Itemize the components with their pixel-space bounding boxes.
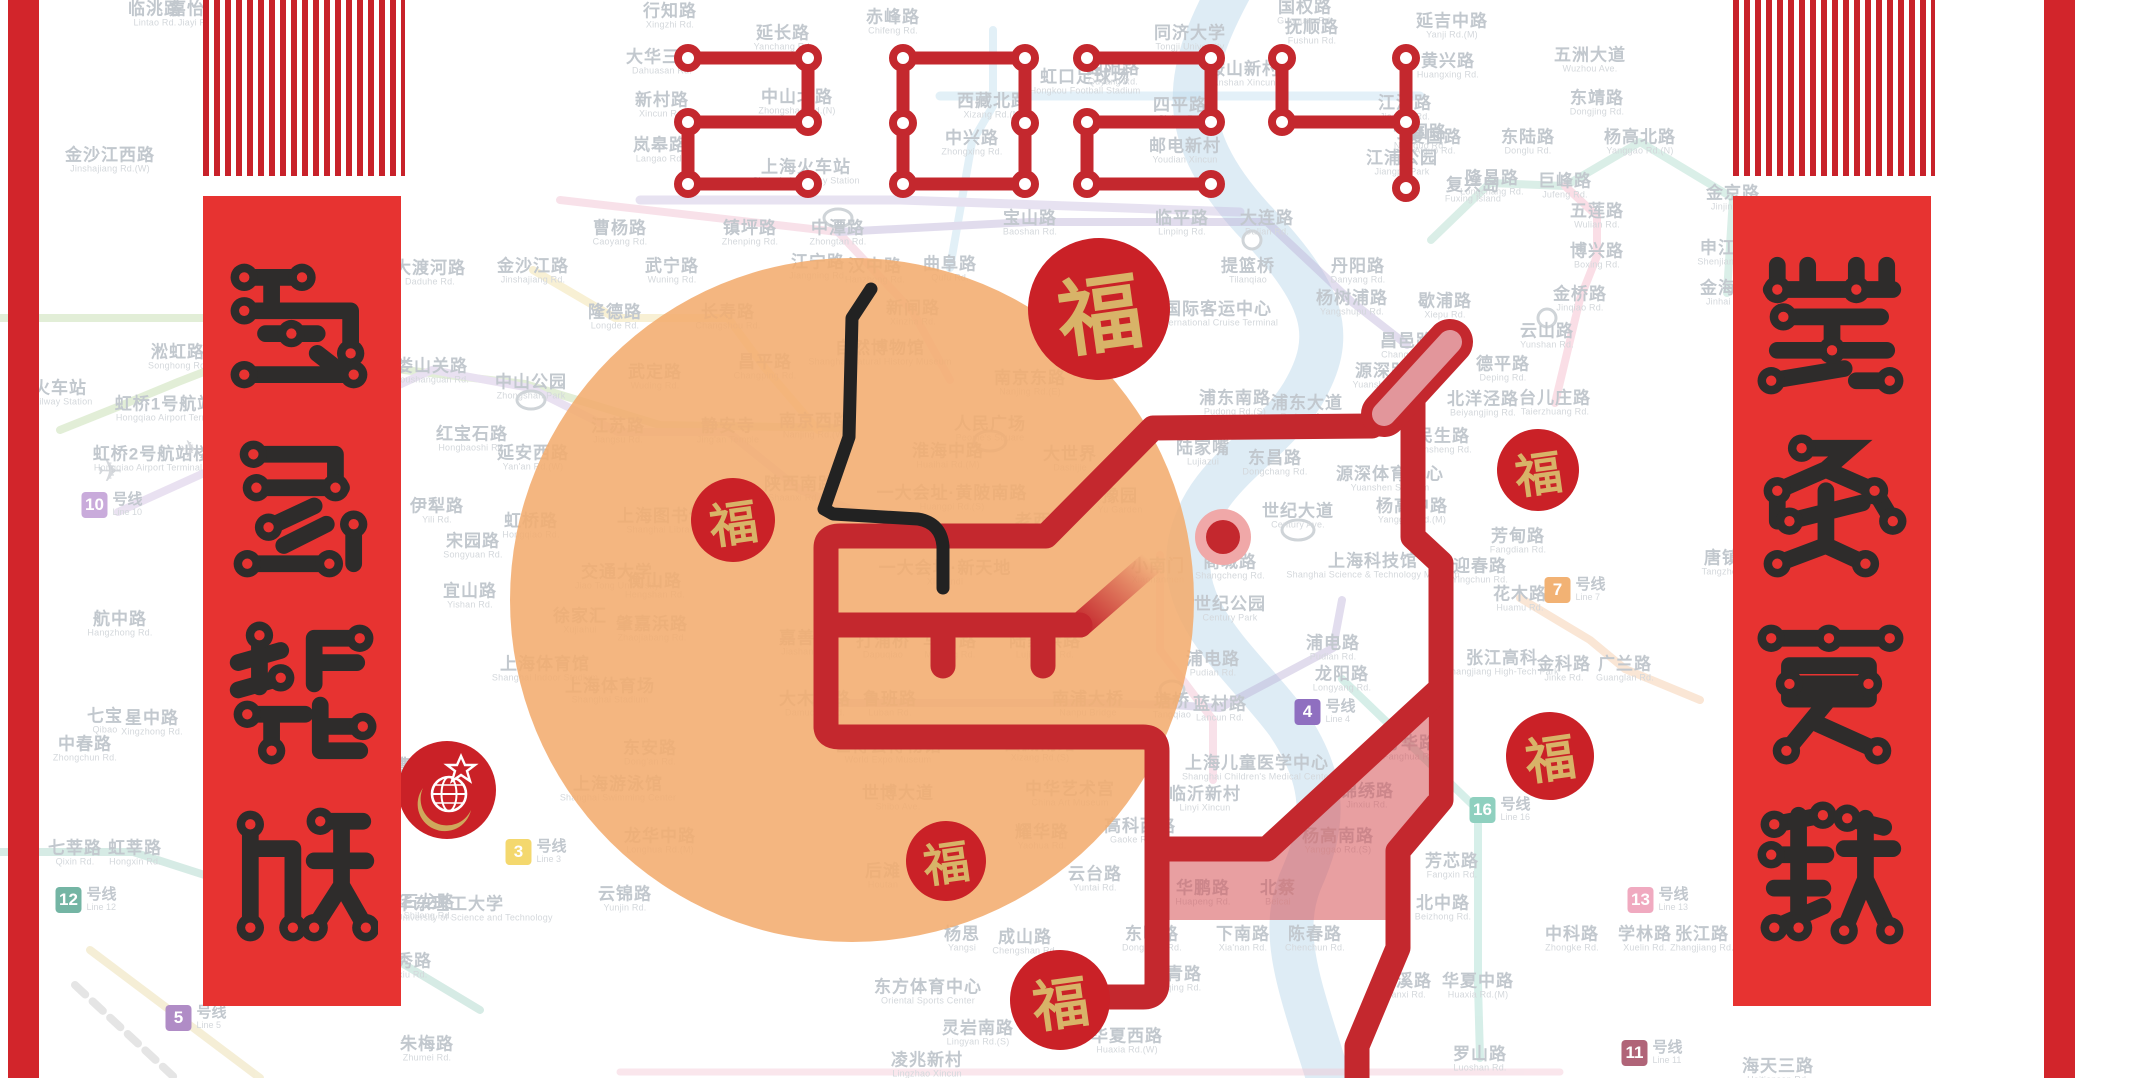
fortune-medallion: 福: [1019, 229, 1179, 389]
edge-bar-right: [2044, 0, 2075, 1078]
banner-glyph: [1756, 250, 1908, 402]
stripe-block-left: [203, 0, 405, 176]
edge-bar-left: [8, 0, 39, 1078]
banner-glyph: [226, 433, 378, 585]
banner-glyph: [1756, 433, 1908, 585]
fortune-medallion: 福: [686, 473, 781, 568]
fortune-medallion: 福: [1492, 424, 1585, 517]
couplet-banner-left: 龍馬精神: [203, 196, 401, 1006]
stripe-block-right: [1733, 0, 1935, 176]
couplet-banner-right: 萬象更新: [1733, 196, 1931, 1006]
banner-glyph: [226, 617, 378, 769]
poster-canvas: {"":""} 临洮路Lintao Rd.嘉怡路Jiayi Rd.行知路Xing…: [0, 0, 2130, 1078]
banner-glyph: [226, 800, 378, 952]
fortune-medallion: 福: [1004, 944, 1117, 1057]
banner-glyph: [226, 250, 378, 402]
fortune-medallion: 福: [901, 816, 991, 906]
banner-glyph: [1756, 617, 1908, 769]
banner-glyph: [1756, 800, 1908, 952]
fortune-medallion: 福: [1500, 706, 1599, 805]
